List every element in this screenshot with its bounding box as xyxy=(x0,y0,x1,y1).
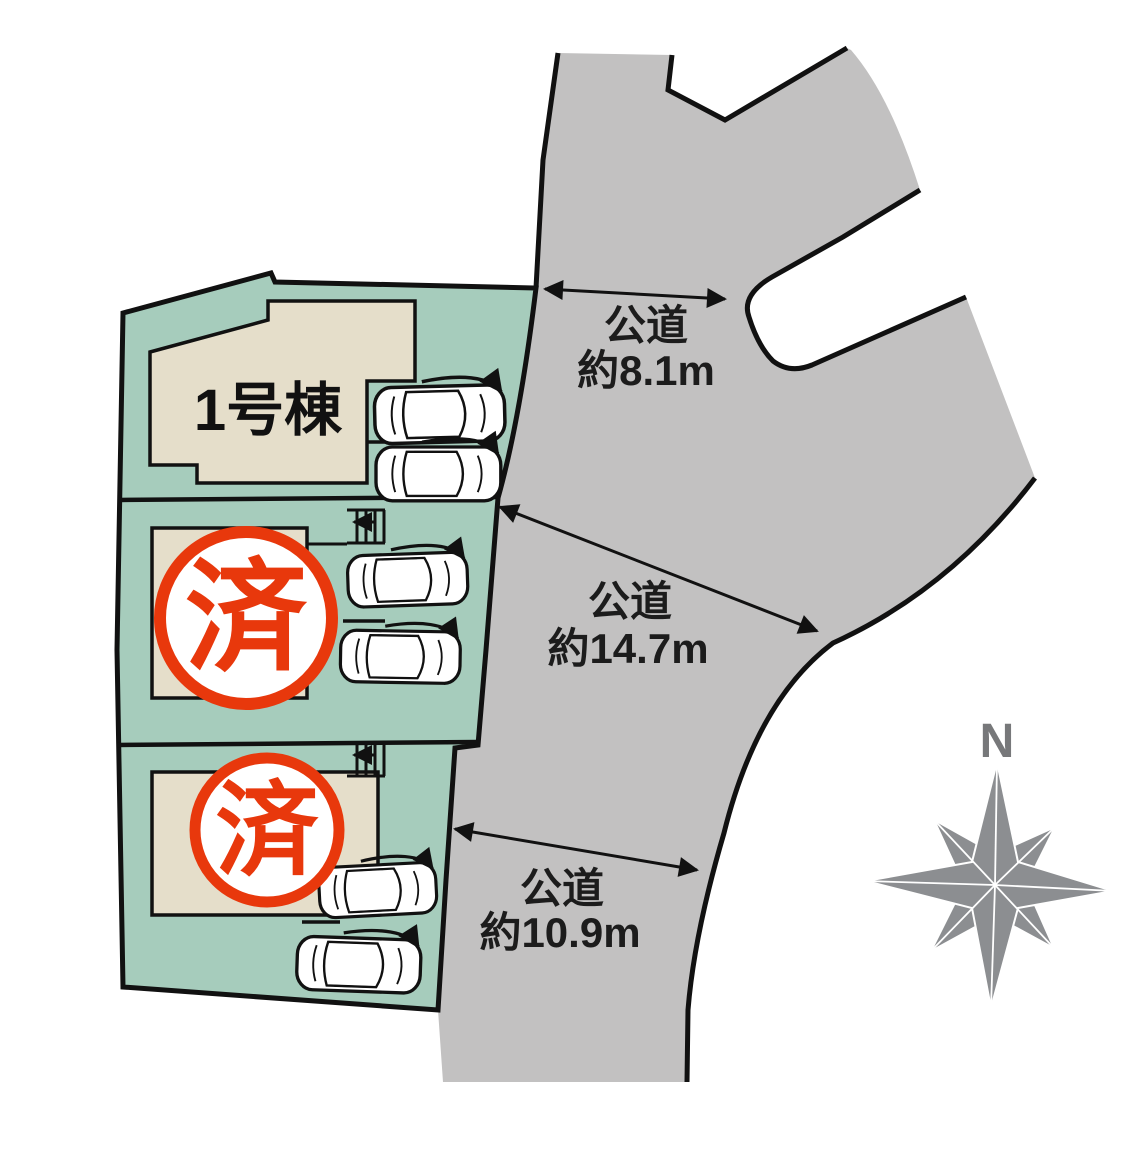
sold-stamp-lot3: 済 xyxy=(195,758,339,902)
compass-rose: N xyxy=(866,715,1113,1008)
road-name-label: 公道 xyxy=(604,302,688,349)
site-plan-svg: 公道 約8.1m 公道 約14.7m 公道 約10.9m 1号棟 済 済 N xyxy=(0,0,1143,1154)
sold-stamp-text: 済 xyxy=(185,550,308,686)
sold-stamp-lot2: 済 xyxy=(160,532,332,704)
road-name-label: 公道 xyxy=(588,578,672,625)
road-name-label: 公道 xyxy=(520,865,604,912)
car-icon xyxy=(340,622,461,683)
road-width-label: 約8.1m xyxy=(577,347,715,394)
lot-divider-2-3 xyxy=(117,742,478,745)
site-plan: 公道 約8.1m 公道 約14.7m 公道 約10.9m 1号棟 済 済 N xyxy=(0,0,1143,1154)
car-icon xyxy=(376,439,501,501)
lot-1-label: 1号棟 xyxy=(194,378,343,443)
sold-stamp-text: 済 xyxy=(216,773,320,888)
north-label: N xyxy=(980,715,1015,768)
car-icon xyxy=(374,376,506,444)
road-width-label: 約10.9m xyxy=(479,909,640,956)
road-width-label: 約14.7m xyxy=(547,625,708,672)
